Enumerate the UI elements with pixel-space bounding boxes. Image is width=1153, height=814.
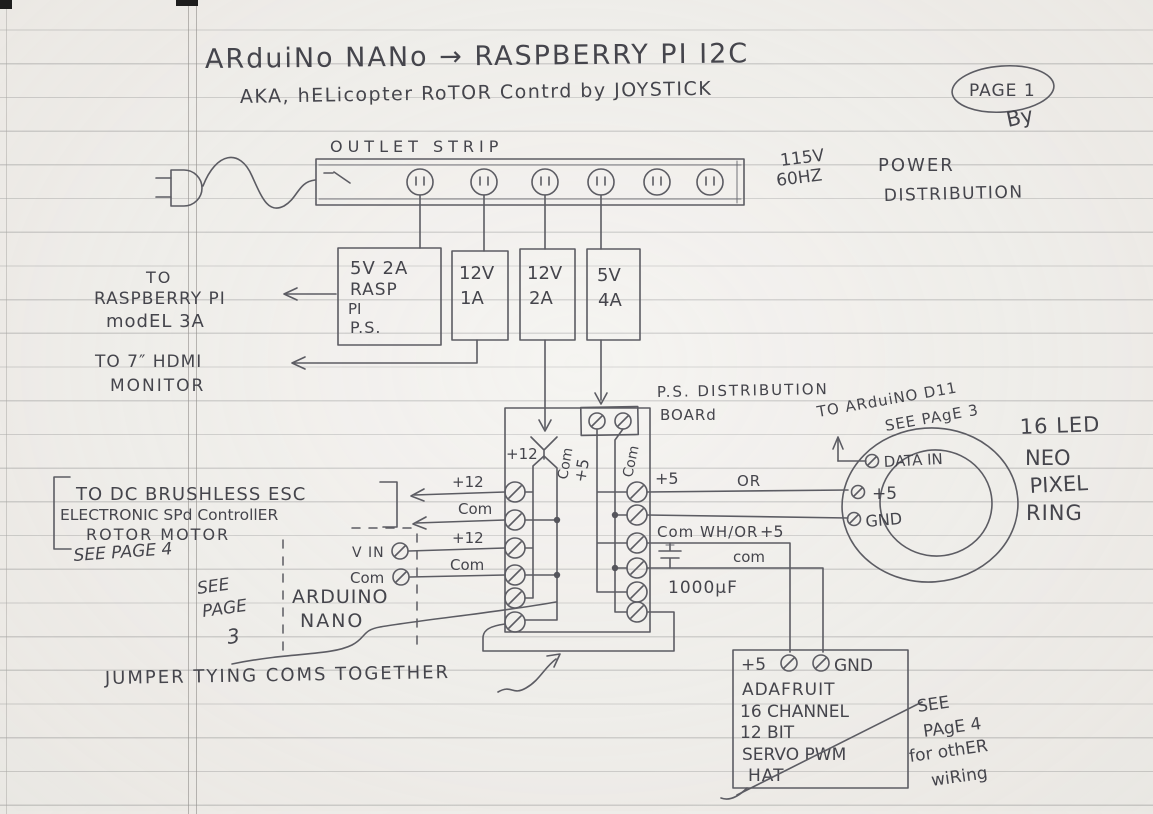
screw-terminal-icon: [848, 513, 861, 526]
ps3-line: 2A: [529, 288, 553, 309]
nano-name: NANO: [300, 610, 364, 632]
hat-line: ADAFRUIT: [742, 680, 835, 700]
hat-pin-label: GND: [834, 656, 873, 676]
squiggle-arrow: [498, 659, 556, 692]
wire-label: Com: [450, 556, 484, 574]
wire-label: +12: [452, 529, 484, 547]
page-subtitle: AKA, hELicopter RoTOR Contrd by JOYSTICK: [240, 78, 713, 108]
see-page-4-note: SEE: [916, 693, 951, 717]
screw-terminal-icon: [852, 486, 865, 499]
plus12-bus: [525, 456, 544, 598]
screw-terminal-icon: [505, 588, 525, 608]
screw-terminal-icon: [393, 569, 409, 585]
screw-terminal-icon: [505, 538, 525, 558]
hat-line: HAT: [748, 766, 784, 786]
left-wires: +12 Com +12 Com: [409, 473, 505, 577]
screw-terminal-icon: [627, 482, 647, 502]
to-rpi-line: TO: [145, 268, 172, 287]
ps4-line: 4A: [598, 290, 622, 311]
to-hdmi-line: MONITOR: [110, 376, 205, 396]
outlet-strip-label: OUTLET STRIP: [330, 137, 503, 156]
wire-color-label: OR: [737, 472, 761, 490]
wire-label: com: [733, 548, 765, 566]
ps1-line: RASP: [350, 280, 398, 300]
screw-terminal-icon: [627, 602, 647, 622]
ps1-line: 5V 2A: [350, 258, 408, 279]
neopixel-pin-label: GND: [865, 509, 903, 531]
ring-outer: [837, 422, 1023, 588]
jumper-note: JUMPER TYING COMS TOGETHER: [104, 654, 560, 692]
outlet-strip: OUTLET STRIP: [156, 137, 744, 251]
screw-terminal-icon: [505, 612, 525, 632]
screw-terminal-icon: [615, 413, 631, 429]
esc-note: TO DC BRUSHLESS ESC ELECTRONIC SPd Contr…: [54, 477, 397, 566]
wire-label: Com: [458, 500, 492, 518]
swoosh-line: [232, 602, 556, 664]
see-page-3: 3: [225, 623, 241, 649]
ps4-line: 5V: [597, 265, 621, 286]
outlet-strip-body: [316, 159, 744, 205]
outlet-sockets: [407, 169, 723, 195]
screw-terminal-icon: [627, 533, 647, 553]
to-rpi-line: modEL 3A: [106, 311, 205, 332]
servo-hat: +5 GND ADAFRUIT 16 CHANNEL 12 BIT SERVO …: [721, 650, 989, 799]
screw-terminal-icon: [505, 482, 525, 502]
signature: By: [1004, 103, 1035, 132]
ac-plug-icon: [171, 170, 202, 206]
ps2-line: 12V: [459, 263, 495, 284]
ps1-line: P.S.: [350, 318, 381, 337]
nano-pin-label: Com: [350, 569, 384, 587]
neopixel-name: 16 LED: [1019, 412, 1100, 439]
wire-label: +5: [655, 469, 679, 488]
ps-distribution-board: P.S. DISTRIBUTION BOARd +12 Com +5 Com: [483, 340, 829, 651]
switch-icon: [324, 172, 350, 183]
neopixel-name: PIXEL: [1029, 471, 1089, 498]
screw-terminal-icon: [505, 510, 525, 530]
hat-line: 12 BIT: [740, 723, 795, 743]
ps2-line: 1A: [460, 288, 484, 309]
power-distribution-label-1: POWER: [878, 155, 955, 176]
capacitor-icon: [659, 543, 681, 568]
board-label: BOARd: [660, 406, 717, 424]
neopixel-name: NEO: [1025, 446, 1071, 470]
see-page-3: PAGE: [201, 596, 249, 622]
screw-terminal-icon: [627, 582, 647, 602]
destination-hdmi: TO 7″ HDMI MONITOR: [94, 340, 477, 396]
power-supplies: 5V 2A RASP PI P.S. 12V 1A 12V 2A 5V 4A: [338, 248, 640, 345]
wire-label: +12: [452, 473, 484, 491]
see-page-4-note: for othER: [908, 736, 989, 767]
board-label: P.S. DISTRIBUTION: [657, 380, 829, 401]
ps3-line: 12V: [527, 263, 563, 284]
esc-line: TO DC BRUSHLESS ESC: [75, 484, 306, 505]
right-wires: +5 OR Com WH/OR +5 com 1000µF: [647, 469, 848, 652]
capacitor-value: 1000µF: [668, 578, 738, 598]
to-hdmi-line: TO 7″ HDMI: [94, 352, 202, 372]
wire-color-label: Com WH/OR: [657, 523, 758, 541]
see-page-4-note: wiRing: [930, 763, 989, 791]
com-bus: [525, 456, 557, 620]
hat-tail-squiggle: [721, 788, 747, 799]
page-title: ARduiNo NANo → RASPBERRY PI I2C: [205, 38, 750, 75]
notebook-page: ARduiNo NANo → RASPBERRY PI I2C AKA, hEL…: [0, 0, 1153, 814]
bus-label-plus12: +12: [506, 445, 538, 463]
screw-terminal-icon: [392, 543, 408, 559]
schematic-drawing: ARduiNo NANo → RASPBERRY PI I2C AKA, hEL…: [0, 0, 1153, 814]
title-block: ARduiNo NANo → RASPBERRY PI I2C AKA, hEL…: [205, 38, 1056, 132]
screw-terminal-icon: [589, 413, 605, 429]
to-rpi-line: RASPBERRY PI: [94, 289, 226, 309]
neopixel-name: RING: [1026, 501, 1083, 525]
hat-line: 16 CHANNEL: [740, 702, 849, 722]
mains-frequency: 60HZ: [775, 165, 823, 190]
mains-note: 115V 60HZ POWER DISTRIBUTION: [775, 146, 1024, 206]
see-page-3: SEE: [196, 575, 231, 599]
screw-terminal-icon: [627, 505, 647, 525]
nano-pin-label: V IN: [352, 545, 385, 561]
screw-terminal-icon: [781, 655, 797, 671]
screw-terminal-icon: [866, 455, 879, 468]
hat-pin-label: +5: [741, 655, 766, 675]
destination-rpi: TO RASPBERRY PI modEL 3A: [94, 268, 336, 332]
bracket-right: [380, 482, 397, 527]
power-distribution-label-2: DISTRIBUTION: [884, 182, 1024, 206]
bus-label-plus5: +5: [570, 457, 593, 484]
ps1-line: PI: [348, 300, 361, 318]
nano-name: ARDUINO: [292, 586, 389, 608]
screw-terminal-icon: [813, 655, 829, 671]
screw-terminal-icon: [627, 558, 647, 578]
neopixel-pin-label: +5: [872, 484, 897, 504]
neopixel-pin-label: DATA IN: [883, 450, 943, 471]
neopixel-ring: DATA IN +5 GND TO ARduiNO D11 SEE PAgE 3…: [815, 379, 1101, 588]
wire-label: +5: [760, 522, 784, 541]
power-cord: [203, 157, 315, 208]
jumper-note-text: JUMPER TYING COMS TOGETHER: [104, 662, 451, 689]
bus-label-com: Com: [620, 444, 642, 479]
screw-terminal-icon: [505, 565, 525, 585]
page-badge-label: PAGE 1: [969, 81, 1036, 101]
esc-line: ELECTRONIC SPd ControllER: [60, 506, 278, 524]
